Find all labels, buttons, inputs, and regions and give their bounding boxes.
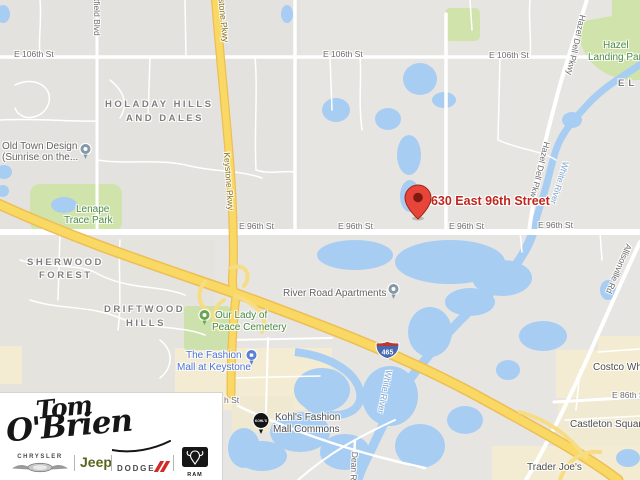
neighborhood-label: HILLS bbox=[126, 319, 166, 329]
neighborhood-label: HOLADAY HILLS bbox=[105, 100, 214, 110]
poi-label-kohls-fashion-mall-commons[interactable]: Kohl's Fashion bbox=[275, 412, 340, 423]
street-label: E 106th St bbox=[14, 50, 54, 59]
chrysler-wing-icon bbox=[12, 462, 68, 473]
poi-label-fashion-mall[interactable]: Mall at Keystone bbox=[177, 362, 251, 373]
poi-pin-icon[interactable] bbox=[79, 143, 92, 160]
poi-pin-icon[interactable] bbox=[387, 283, 400, 300]
brand-divider bbox=[173, 455, 174, 471]
kohls-logo-icon[interactable]: KOHL'S bbox=[252, 412, 270, 436]
map-screenshot: E 106th St E 106th St E 106th St E 96th … bbox=[0, 0, 640, 480]
destination-address-label: 4630 East 96th Street bbox=[424, 195, 550, 209]
poi-label-lenape-trace-park[interactable]: Trace Park bbox=[64, 215, 113, 226]
street-label: E 96th St bbox=[239, 222, 274, 231]
neighborhood-label: EL bbox=[618, 79, 638, 89]
dodge-logo: DODGE bbox=[117, 458, 167, 476]
poi-label-fashion-mall[interactable]: The Fashion bbox=[186, 350, 242, 361]
neighborhood-label: DRIFTWOOD bbox=[104, 305, 185, 315]
street-label: E 86th St bbox=[612, 391, 640, 400]
brand-divider bbox=[74, 455, 75, 471]
street-label-fragment: h St bbox=[224, 396, 239, 405]
jeep-logo: Jeep bbox=[80, 454, 112, 470]
street-label: E 96th St bbox=[338, 222, 373, 231]
poi-label-kohls-fashion-mall-commons[interactable]: Mall Commons bbox=[273, 424, 340, 435]
street-label-rotated: Westfield Blvd bbox=[92, 0, 101, 36]
street-label: E 96th St bbox=[449, 222, 484, 231]
brand-divider bbox=[111, 455, 112, 471]
ram-head-icon bbox=[182, 447, 208, 467]
poi-label-hazel-landing-park[interactable]: Hazel bbox=[603, 40, 629, 51]
poi-label-our-lady-of-peace-cemetery[interactable]: Our Lady of bbox=[215, 310, 267, 321]
svg-text:465: 465 bbox=[382, 350, 394, 357]
svg-text:KOHL'S: KOHL'S bbox=[255, 419, 267, 423]
poi-label-costco[interactable]: Costco Wholesale bbox=[593, 362, 640, 373]
poi-label-castleton-square[interactable]: Castleton Square bbox=[570, 419, 640, 430]
street-label-rotated: Dean Rd bbox=[348, 452, 359, 480]
poi-label-old-town-design[interactable]: (Sunrise on the... bbox=[2, 152, 78, 163]
interstate-465-shield-icon: 465 bbox=[375, 341, 400, 359]
street-label: E 96th St bbox=[538, 221, 573, 230]
signature-swash bbox=[112, 439, 172, 453]
neighborhood-label: FOREST bbox=[39, 271, 93, 281]
street-label: E 106th St bbox=[323, 50, 363, 59]
poi-label-trader-joes[interactable]: Trader Joe's bbox=[527, 462, 582, 473]
street-label: E 106th St bbox=[489, 51, 529, 60]
shopping-pin-icon[interactable] bbox=[245, 349, 258, 366]
poi-label-lenape-trace-park[interactable]: Lenape bbox=[76, 204, 109, 215]
neighborhood-label: AND DALES bbox=[126, 114, 204, 124]
park-pin-icon[interactable] bbox=[198, 309, 211, 326]
neighborhood-label: SHERWOOD bbox=[27, 258, 104, 268]
poi-label-river-road-apartments[interactable]: River Road Apartments bbox=[283, 288, 386, 299]
destination-marker-icon[interactable] bbox=[403, 184, 433, 221]
poi-label-our-lady-of-peace-cemetery[interactable]: Peace Cemetery bbox=[212, 322, 286, 333]
poi-label-old-town-design[interactable]: Old Town Design bbox=[2, 141, 77, 152]
ram-logo: RAM bbox=[180, 447, 210, 478]
brand-row: CHRYSLER Jeep DODGE bbox=[0, 453, 223, 479]
dealer-logo: Tom O'Brien CHRYSLER Jeep DODGE bbox=[0, 392, 223, 480]
chrysler-logo: CHRYSLER bbox=[10, 454, 70, 478]
poi-label-hazel-landing-park[interactable]: Landing Park bbox=[588, 52, 640, 63]
